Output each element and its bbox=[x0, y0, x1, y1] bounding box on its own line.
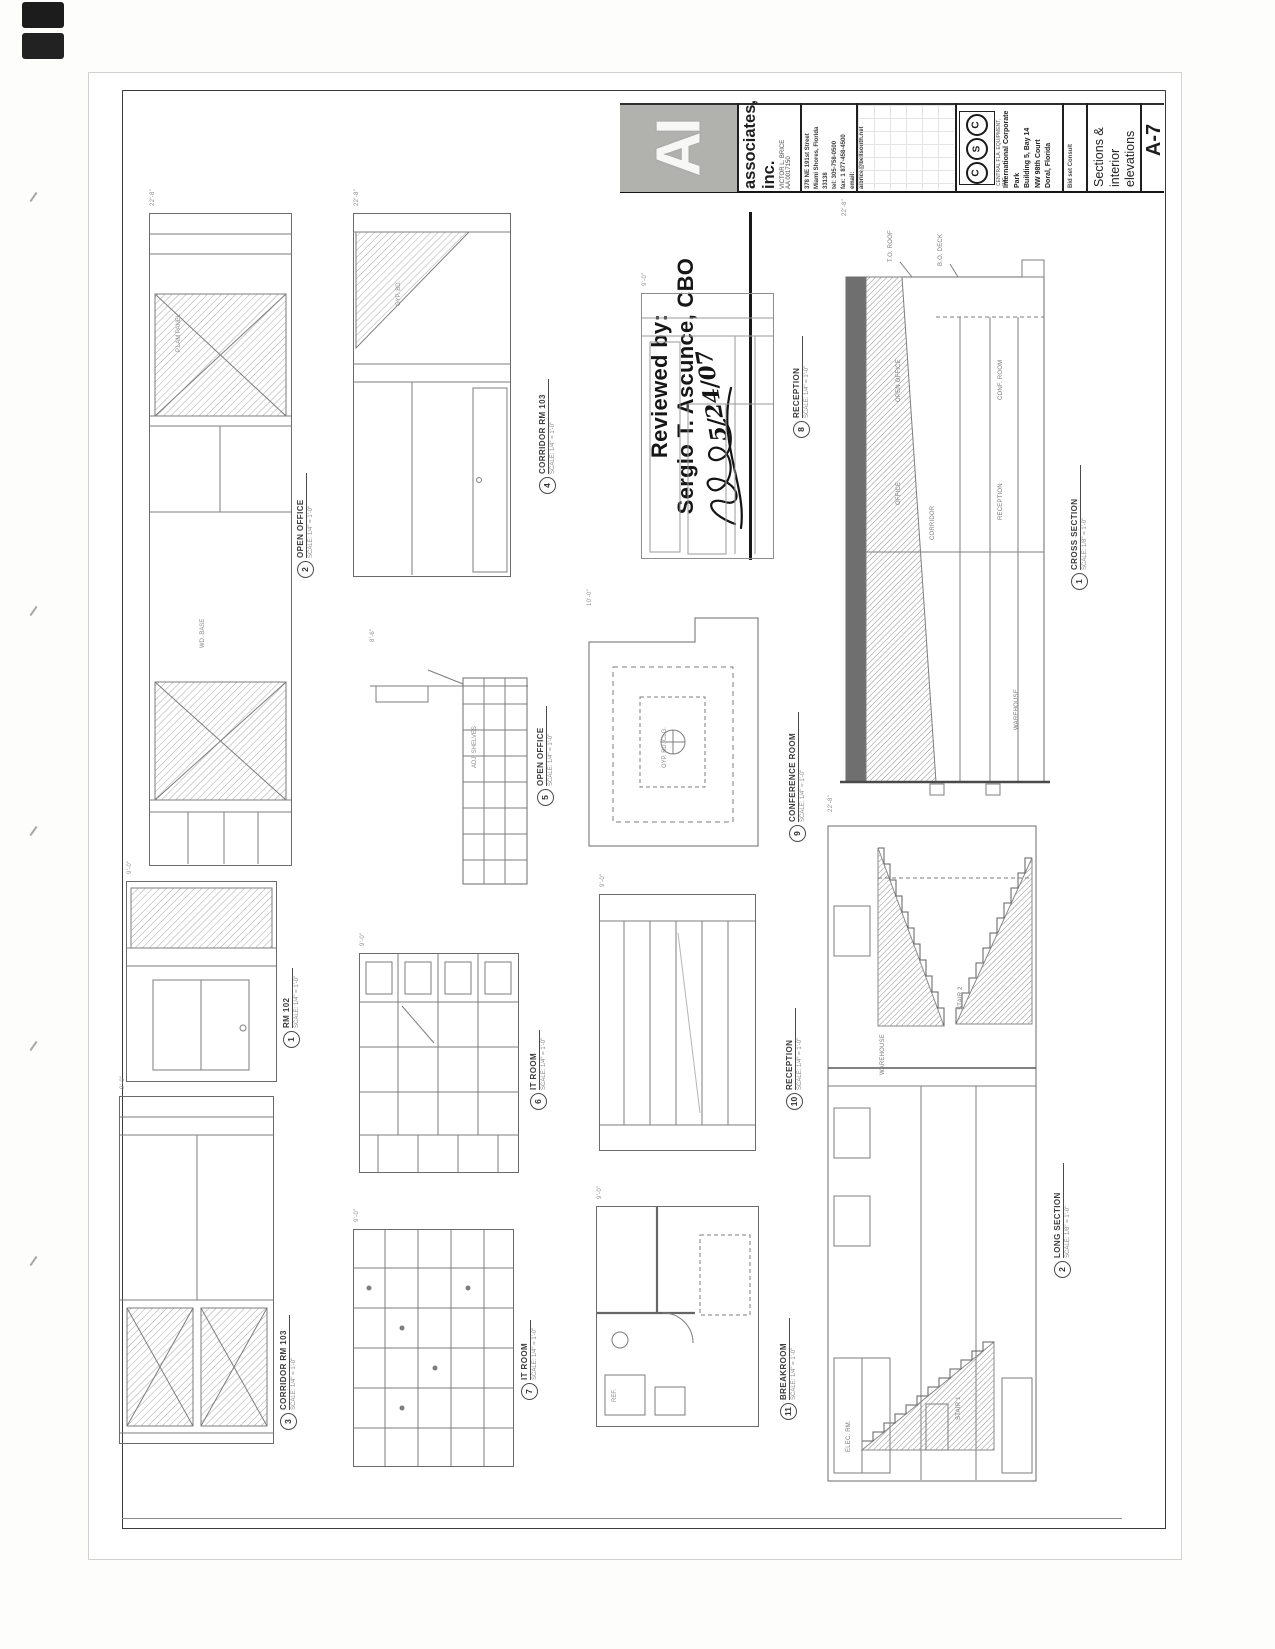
client-logo-letter: S bbox=[966, 138, 988, 160]
callout-scale: SCALE: 1/4" = 1'-0" bbox=[549, 379, 556, 474]
elevation-reception-2 bbox=[598, 893, 757, 1152]
section-room-label: OPEN OFFICE bbox=[896, 346, 902, 402]
dim-tag: 8'-6" bbox=[370, 608, 376, 642]
elevation-open-office-2 bbox=[368, 648, 532, 900]
callout-title: CONFERENCE ROOM bbox=[788, 712, 799, 822]
callout-number: 5 bbox=[537, 789, 554, 806]
callout-scale: SCALE: 1/4" = 1'-0" bbox=[803, 336, 810, 418]
section-note: B.O. DECK bbox=[938, 224, 944, 266]
callout-number: 1 bbox=[283, 1031, 300, 1048]
elevation-corridor-rm103-1 bbox=[118, 1095, 275, 1445]
dim-tag: 22'-8" bbox=[150, 172, 156, 206]
callout-rm-102: 1 RM 102 SCALE: 1/4" = 1'-0" bbox=[282, 968, 300, 1048]
firm-name-block: associates, inc. VICTOR L. BRICE AA 0017… bbox=[741, 105, 792, 189]
callout-title: BREAKROOM bbox=[779, 1318, 790, 1400]
titleblock-divider bbox=[737, 103, 739, 192]
address-line: Miami Shores, Florida bbox=[813, 105, 822, 189]
callout-breakroom: 11 BREAKROOM SCALE: 1/4" = 1'-0" bbox=[779, 1318, 797, 1420]
callout-it-room-2: 7 IT ROOM SCALE: 1/4" = 1'-0" bbox=[520, 1320, 538, 1400]
project-address-block: International Corporate Park Building 5,… bbox=[1002, 104, 1055, 188]
titleblock-divider bbox=[800, 103, 802, 192]
annotation: ADJ. SHELVES bbox=[472, 714, 478, 768]
dim-tag: 22'-8" bbox=[354, 172, 360, 206]
callout-title: OPEN OFFICE bbox=[296, 473, 307, 558]
section-room-label: OFFICE bbox=[896, 465, 902, 505]
callout-scale: SCALE: 1/4" = 1'-0" bbox=[540, 1030, 547, 1090]
client-logo-letter: C bbox=[966, 114, 988, 136]
scan-mark bbox=[30, 1256, 38, 1266]
callout-scale: SCALE: 1/8" = 1'-0" bbox=[1064, 1163, 1071, 1258]
callout-number: 7 bbox=[521, 1383, 538, 1400]
callout-scale: SCALE: 1/4" = 1'-0" bbox=[307, 473, 314, 558]
callout-scale: SCALE: 1/4" = 1'-0" bbox=[531, 1320, 538, 1380]
elevation-it-room-1 bbox=[358, 952, 520, 1174]
callout-number: 10 bbox=[786, 1093, 803, 1110]
titleblock-divider bbox=[1140, 103, 1142, 192]
callout-it-room-1: 6 IT ROOM SCALE: 1/4" = 1'-0" bbox=[529, 1030, 547, 1110]
callout-scale: SCALE: 1/4" = 1'-0" bbox=[290, 1315, 297, 1410]
project-line: International Corporate bbox=[1002, 104, 1013, 188]
project-line: Park bbox=[1013, 104, 1024, 188]
dim-tag: 9'-0" bbox=[600, 853, 606, 887]
cross-section-drawing bbox=[840, 222, 1052, 800]
callout-title: RM 102 bbox=[282, 968, 293, 1028]
dim-tag: 9'-0" bbox=[642, 252, 648, 286]
annotation: GYP. BD. CLG. bbox=[662, 712, 668, 768]
scan-mark bbox=[30, 192, 38, 202]
sheet-title-line: Sections & bbox=[1092, 107, 1108, 187]
callout-open-office-2: 5 OPEN OFFICE SCALE: 1/4" = 1'-0" bbox=[536, 706, 554, 806]
project-line: Doral, Florida bbox=[1044, 104, 1055, 188]
dim-tag: 22'-8" bbox=[842, 182, 848, 216]
callout-scale: SCALE: 1/4" = 1'-0" bbox=[796, 1008, 803, 1090]
callout-title: CORRIDOR RM 103 bbox=[279, 1315, 290, 1410]
dim-tag: 9'-0" bbox=[120, 1055, 126, 1089]
annotation: WD. BASE bbox=[200, 604, 206, 648]
callout-title: IT ROOM bbox=[529, 1030, 540, 1090]
dim-tag: 9'-0" bbox=[360, 912, 366, 946]
callout-long-section: 2 LONG SECTION SCALE: 1/8" = 1'-0" bbox=[1053, 1163, 1071, 1278]
section-room-label: ELEC. RM. bbox=[846, 1408, 852, 1452]
callout-number: 4 bbox=[539, 477, 556, 494]
project-line: Building 5, Bay 14 bbox=[1023, 104, 1034, 188]
elevation-reception-1 bbox=[640, 292, 775, 560]
titleblock-divider bbox=[955, 103, 957, 192]
dim-tag: 10'-0" bbox=[587, 572, 593, 606]
annotation: P.LAM PANEL bbox=[176, 300, 182, 352]
elevation-it-room-2 bbox=[352, 1228, 515, 1468]
callout-scale: SCALE: 1/4" = 1'-0" bbox=[293, 968, 300, 1028]
section-note: T.O. ROOF bbox=[888, 220, 894, 262]
dim-tag: 22'-8" bbox=[828, 778, 834, 812]
firm-logo-text: AI bbox=[643, 120, 714, 176]
titleblock-divider bbox=[1062, 103, 1064, 192]
address-line: fax: 1 877-458-4500 bbox=[840, 105, 849, 189]
address-line: 33138 bbox=[822, 105, 831, 189]
callout-corridor-rm103-2: 4 CORRIDOR RM 103 SCALE: 1/4" = 1'-0" bbox=[538, 379, 556, 494]
revision-grid bbox=[858, 105, 954, 190]
callout-number: 8 bbox=[793, 421, 810, 438]
address-line: tel: 305-758-0500 bbox=[831, 105, 840, 189]
dim-tag: 9'-0" bbox=[354, 1188, 360, 1222]
firm-logo-box: AI bbox=[620, 105, 737, 192]
callout-title: LONG SECTION bbox=[1053, 1163, 1064, 1258]
project-line: NW 98th Court bbox=[1034, 104, 1045, 188]
callout-number: 2 bbox=[297, 561, 314, 578]
callout-scale: SCALE: 1/4" = 1'-0" bbox=[790, 1318, 797, 1400]
titleblock-divider bbox=[1086, 103, 1088, 192]
callout-number: 6 bbox=[530, 1093, 547, 1110]
scan-corner-blob bbox=[22, 2, 64, 28]
callout-title: CORRIDOR RM 103 bbox=[538, 379, 549, 474]
client-logo-box: C S C bbox=[959, 111, 995, 185]
callout-reception-1: 8 RECEPTION SCALE: 1/4" = 1'-0" bbox=[792, 336, 810, 438]
issue-note: Bid set Consult bbox=[1068, 106, 1074, 188]
callout-title: RECEPTION bbox=[785, 1008, 796, 1090]
section-room-label: CORRIDOR bbox=[930, 494, 936, 540]
plan-conference-room bbox=[585, 612, 762, 852]
callout-number: 3 bbox=[280, 1413, 297, 1430]
elevation-corridor-rm103-2 bbox=[352, 212, 512, 578]
callout-number: 1 bbox=[1071, 573, 1088, 590]
sheet-title-line: interior bbox=[1108, 107, 1124, 187]
callout-title: OPEN OFFICE bbox=[536, 706, 547, 786]
callout-number: 11 bbox=[780, 1403, 797, 1420]
firm-license: AA 0017150 bbox=[786, 105, 792, 189]
elevation-rm-102 bbox=[125, 880, 278, 1083]
callout-number: 2 bbox=[1054, 1261, 1071, 1278]
callout-scale: SCALE: 1/8" = 1'-0" bbox=[1081, 465, 1088, 570]
callout-number: 9 bbox=[789, 825, 806, 842]
section-room-label: WAREHOUSE bbox=[880, 1019, 886, 1075]
firm-name-top: associates, bbox=[741, 105, 760, 189]
dim-tag: 9'-0" bbox=[127, 840, 133, 874]
scanned-architectural-sheet: { "sheet": { "sheet_number": "A-7", "she… bbox=[0, 0, 1275, 1649]
section-room-label: STAIR 1 bbox=[956, 1380, 962, 1420]
callout-title: RECEPTION bbox=[792, 336, 803, 418]
section-room-label: STAIR 2 bbox=[958, 970, 964, 1010]
firm-name-bottom: inc. bbox=[760, 105, 778, 189]
sheet-title: Sections & interior elevations bbox=[1092, 107, 1139, 187]
callout-reception-2: 10 RECEPTION SCALE: 1/4" = 1'-0" bbox=[785, 1008, 803, 1110]
annotation: REF. bbox=[612, 1376, 618, 1402]
scan-mark bbox=[30, 606, 38, 616]
client-logo-letter: C bbox=[966, 162, 988, 184]
sheet-title-line: elevations bbox=[1123, 107, 1139, 187]
callout-corridor-rm103-1: 3 CORRIDOR RM 103 SCALE: 1/4" = 1'-0" bbox=[279, 1315, 297, 1430]
callout-conference-room: 9 CONFERENCE ROOM SCALE: 1/4" = 1'-0" bbox=[788, 712, 806, 842]
dim-tag: 9'-0" bbox=[597, 1165, 603, 1199]
section-room-label: WAREHOUSE bbox=[1014, 674, 1020, 730]
scan-mark bbox=[30, 1041, 38, 1051]
section-room-label: RECEPTION bbox=[998, 470, 1004, 520]
elevation-open-office-1 bbox=[148, 212, 293, 867]
address-line: 378 NE 191st Street bbox=[804, 105, 813, 189]
section-room-label: CONF. ROOM bbox=[998, 344, 1004, 400]
callout-scale: SCALE: 1/4" = 1'-0" bbox=[799, 712, 806, 822]
callout-title: CROSS SECTION bbox=[1070, 465, 1081, 570]
address-line: email: bbox=[849, 105, 858, 189]
plan-breakroom bbox=[595, 1205, 760, 1428]
scan-corner-blob bbox=[22, 33, 64, 59]
long-section-drawing bbox=[826, 818, 1040, 1492]
callout-open-office-1: 2 OPEN OFFICE SCALE: 1/4" = 1'-0" bbox=[296, 473, 314, 578]
callout-cross-section: 1 CROSS SECTION SCALE: 1/8" = 1'-0" bbox=[1070, 465, 1088, 590]
scan-mark bbox=[30, 826, 38, 836]
annotation: GYP. BD. bbox=[396, 266, 402, 306]
sheet-number: A-7 bbox=[1143, 104, 1166, 176]
callout-title: IT ROOM bbox=[520, 1320, 531, 1380]
callout-scale: SCALE: 1/4" = 1'-0" bbox=[547, 706, 554, 786]
sheet-border-inner-line bbox=[122, 1518, 1122, 1519]
